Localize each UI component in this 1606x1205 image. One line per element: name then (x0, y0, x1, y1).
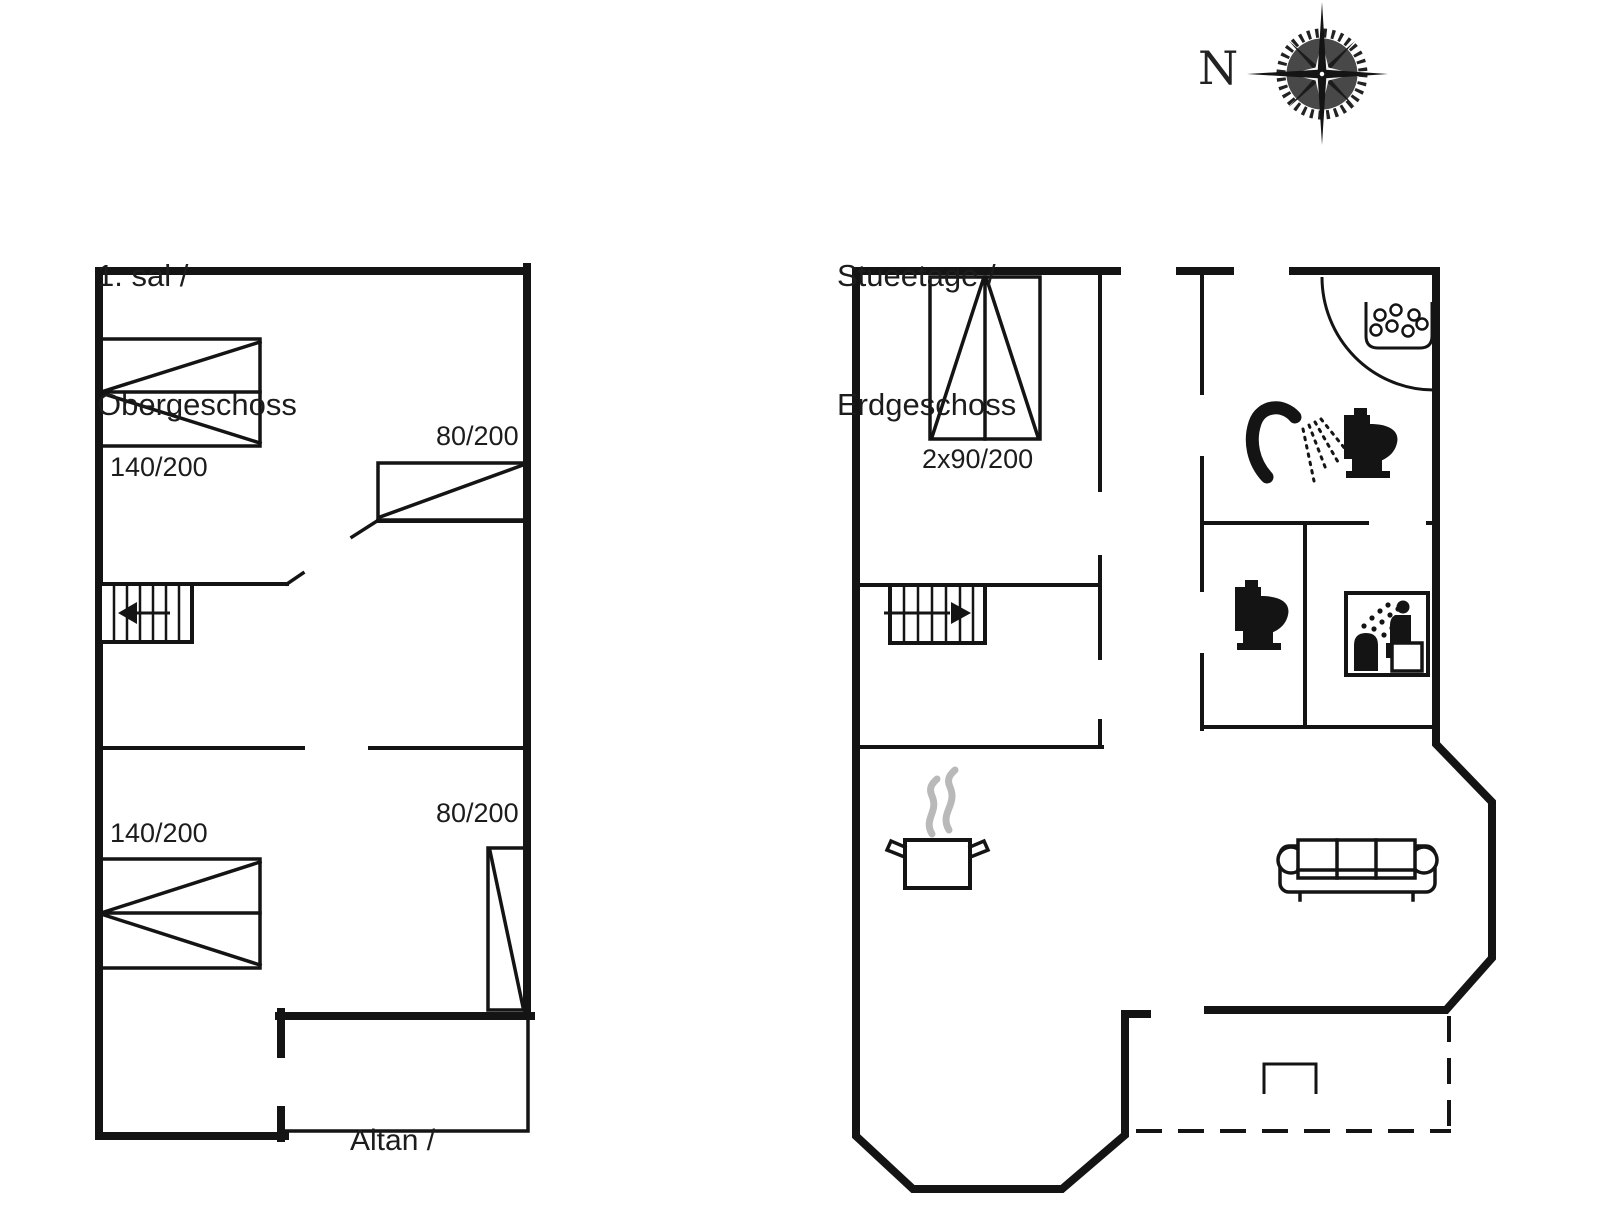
steam-icon (929, 770, 955, 834)
toilet-icon (1235, 580, 1288, 650)
bed-icon (488, 848, 525, 1010)
stove-pot-icon (887, 770, 988, 888)
bed-icon (378, 463, 525, 520)
bed-size-label: 140/200 (110, 818, 208, 849)
upper-floor-title-line2: Obergeschoss (97, 383, 297, 426)
balcony-label: Altan / Balkon (350, 1033, 442, 1205)
shower-icon (1252, 408, 1346, 481)
balcony-label-line1: Altan / (350, 1119, 442, 1162)
floorplan-canvas: N 1. sal / Obergeschoss Stueetage / Erdg… (0, 0, 1606, 1205)
compass-north-label: N (1198, 42, 1238, 95)
bed-size-label: 80/200 (436, 421, 519, 452)
stairs-down-icon (100, 584, 192, 642)
terrace-step-icon (1264, 1064, 1316, 1094)
bed-size-label: 80/200 (436, 798, 519, 829)
whirlpool-icon (1366, 302, 1432, 348)
bed-size-label: 140/200 (110, 452, 208, 483)
bed-size-label: 2x90/200 (922, 444, 1033, 475)
bed-icon (100, 859, 260, 968)
ground-floor-title-line2: Erdgeschoss (837, 383, 1016, 426)
sauna-icon (1346, 593, 1428, 675)
upper-floor-title-line1: 1. sal / (97, 254, 297, 297)
door-leaf-icon (352, 521, 377, 537)
compass-rose-icon (1247, 2, 1388, 145)
toilet-icon (1344, 408, 1397, 478)
ground-floor-title-line1: Stueetage / (837, 254, 1016, 297)
door-leaf-icon (287, 573, 303, 584)
stairs-up-icon (884, 585, 985, 643)
sofa-icon (1278, 840, 1437, 900)
terrace-dashed-outline (1136, 1016, 1451, 1131)
door-swing-icon (1322, 277, 1434, 390)
